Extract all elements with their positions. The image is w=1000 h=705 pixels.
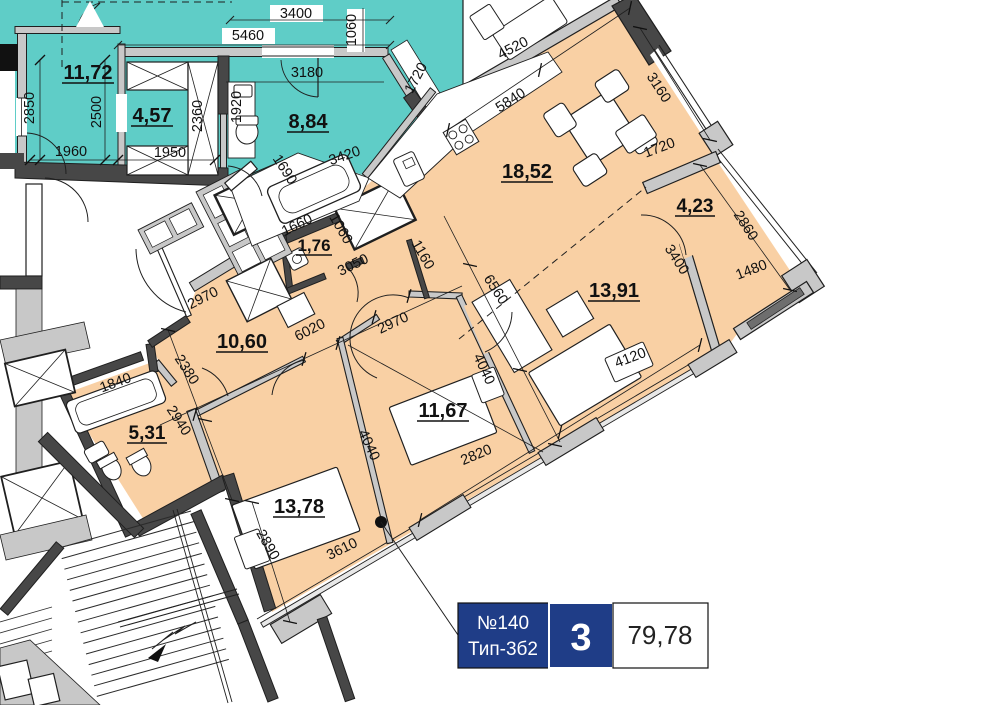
svg-text:11,67: 11,67 [419,400,468,422]
svg-text:1060: 1060 [344,14,360,46]
svg-text:3180: 3180 [291,65,323,81]
svg-text:3400: 3400 [280,6,312,22]
svg-text:1950: 1950 [154,145,186,161]
svg-text:2850: 2850 [22,92,38,124]
svg-text:79,78: 79,78 [627,620,692,650]
svg-text:18,52: 18,52 [502,161,552,183]
svg-text:13,91: 13,91 [589,280,639,302]
svg-text:№140: №140 [477,613,529,634]
svg-text:3: 3 [570,617,591,659]
svg-text:5,31: 5,31 [129,423,166,444]
svg-text:Тип-3б2: Тип-3б2 [468,639,538,660]
svg-text:5460: 5460 [232,28,264,44]
svg-text:1960: 1960 [55,144,87,160]
svg-text:4,23: 4,23 [677,196,714,217]
svg-text:2360: 2360 [190,100,206,132]
svg-text:10,60: 10,60 [217,331,267,353]
svg-text:2500: 2500 [89,96,105,128]
svg-text:1920: 1920 [229,91,245,123]
svg-text:13,78: 13,78 [274,496,324,518]
svg-text:8,84: 8,84 [289,111,329,133]
svg-text:11,72: 11,72 [64,62,113,84]
svg-text:1,76: 1,76 [297,236,330,255]
svg-text:4,57: 4,57 [133,105,172,127]
